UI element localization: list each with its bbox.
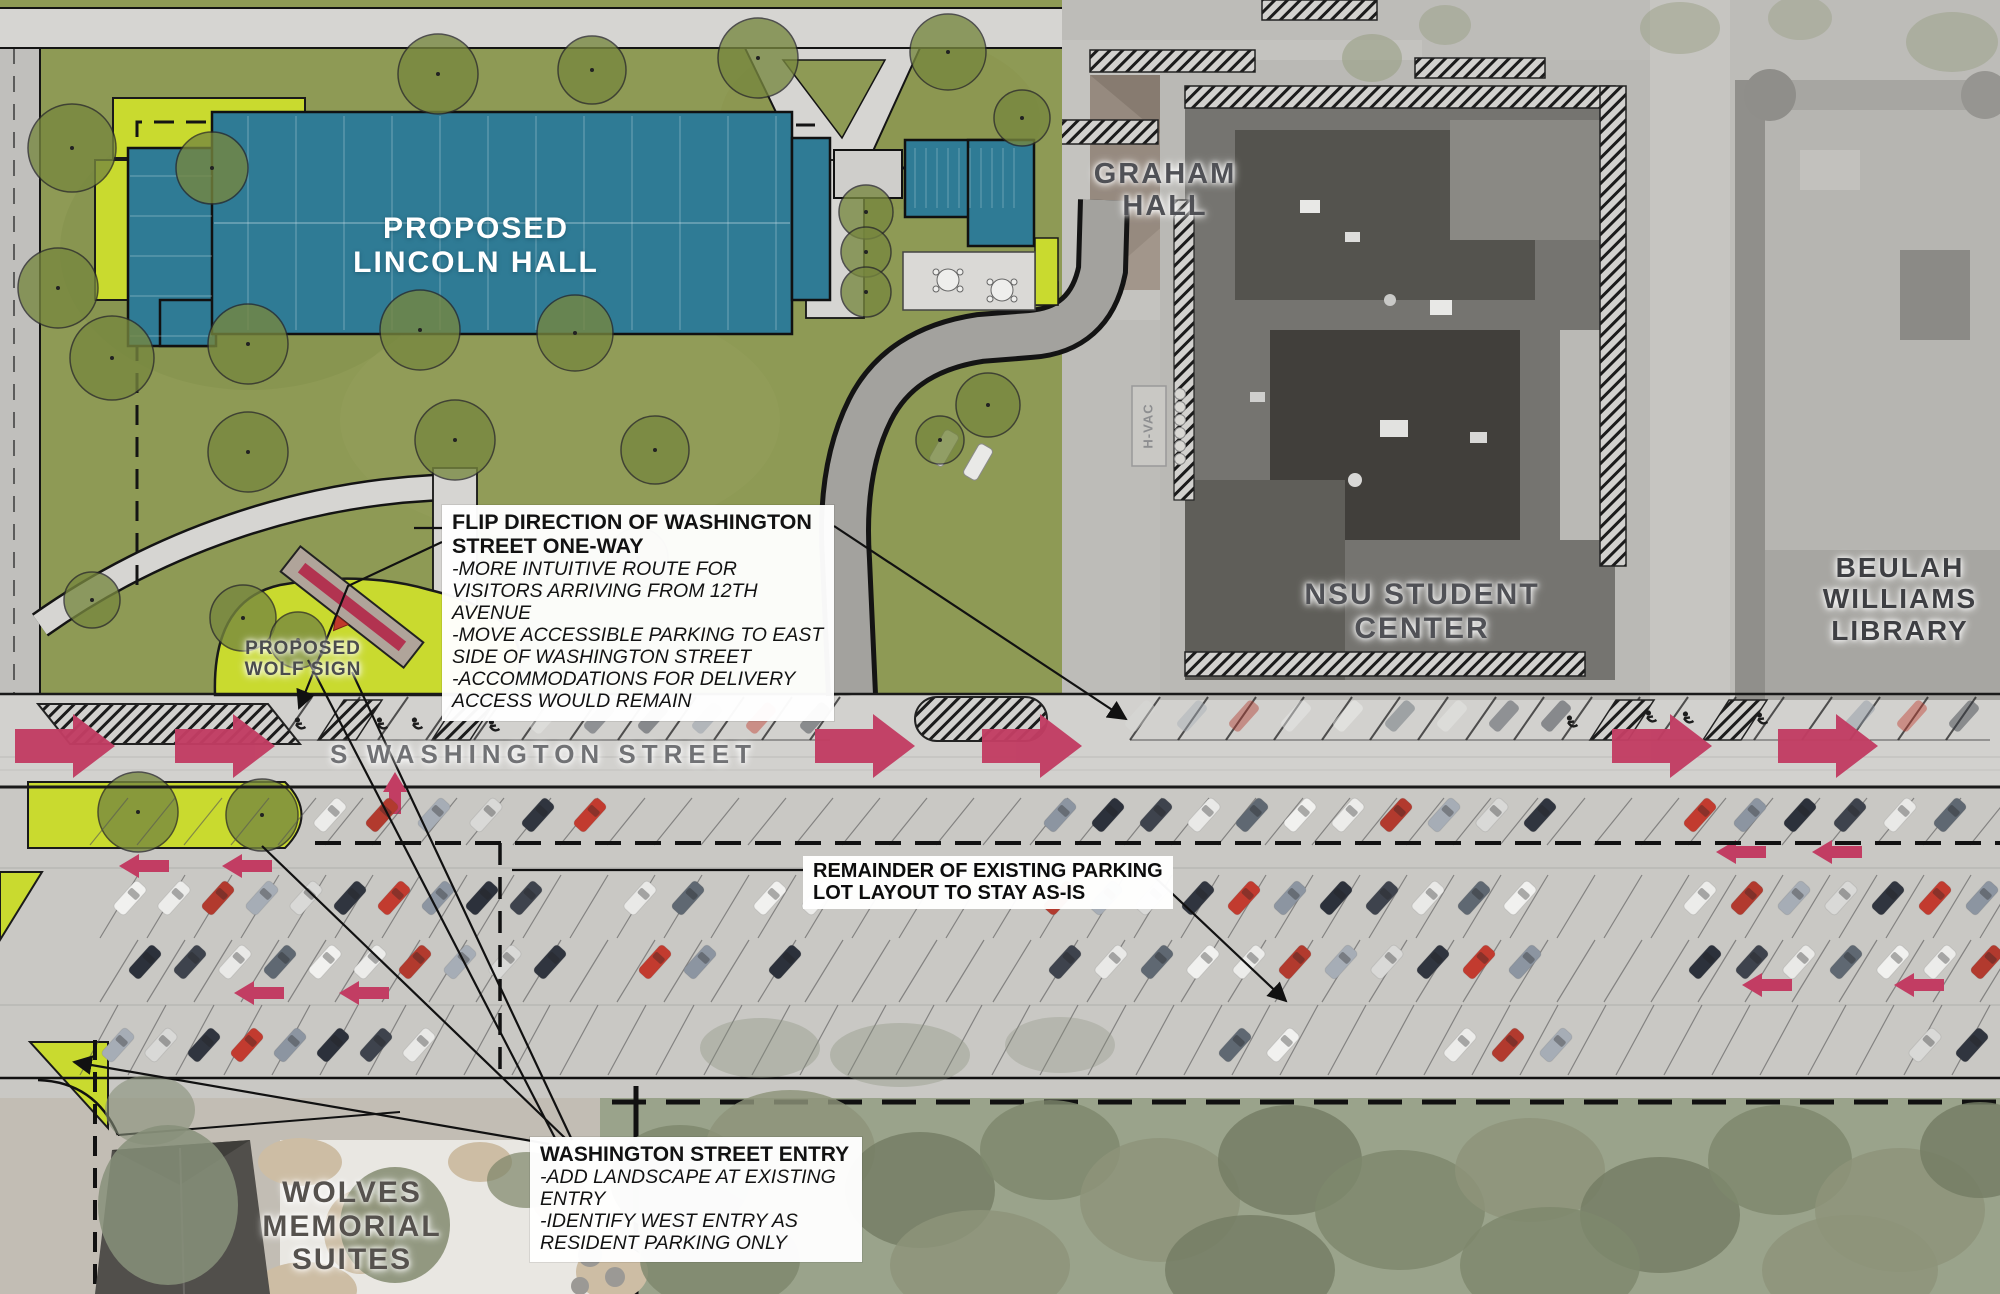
lincoln-hall-label-line1: PROPOSED: [353, 212, 599, 246]
parking-note: REMAINDER OF EXISTING PARKING LOT LAYOUT…: [803, 856, 1173, 909]
wolves-label-line2: MEMORIAL: [262, 1210, 441, 1244]
street-entry-callout: WASHINGTON STREET ENTRY -ADD LANDSCAPE A…: [530, 1137, 862, 1262]
graham-hall-label-line1: GRAHAM: [1094, 158, 1237, 190]
wolf-sign-label-line2: WOLF SIGN: [245, 659, 362, 680]
graham-hall-label: GRAHAM HALL: [1094, 158, 1237, 223]
lincoln-hall-label-line2: LINCOLN HALL: [353, 246, 599, 280]
parking-note-line2: LOT LAYOUT TO STAY AS-IS: [813, 882, 1163, 904]
wolves-label-line1: WOLVES: [262, 1176, 441, 1210]
library-label-line3: LIBRARY: [1823, 615, 1977, 646]
library-label-line1: BEULAH: [1823, 552, 1977, 583]
library-label-line2: WILLIAMS: [1823, 583, 1977, 614]
flip-direction-bullet-1: -MORE INTUITIVE ROUTE FOR VISITORS ARRIV…: [452, 558, 824, 624]
lincoln-hall-label: PROPOSED LINCOLN HALL: [353, 212, 599, 279]
nsu-student-center-label: NSU STUDENT CENTER: [1304, 578, 1539, 645]
graham-hall-label-line2: HALL: [1094, 190, 1237, 222]
flip-direction-callout: FLIP DIRECTION OF WASHINGTON STREET ONE-…: [442, 505, 834, 721]
site-plan-canvas: PROPOSED LINCOLN HALL GRAHAM HALL NSU ST…: [0, 0, 2000, 1294]
nsu-label-line1: NSU STUDENT: [1304, 578, 1539, 612]
flip-direction-bullet-3: -ACCOMMODATIONS FOR DELIVERY ACCESS WOUL…: [452, 668, 824, 712]
wolf-sign-label: PROPOSED WOLF SIGN: [245, 638, 362, 681]
wolves-label-line3: SUITES: [262, 1243, 441, 1277]
street-entry-bullet-1: -ADD LANDSCAPE AT EXISTING ENTRY: [540, 1166, 852, 1210]
nsu-label-line2: CENTER: [1304, 612, 1539, 646]
street-entry-title: WASHINGTON STREET ENTRY: [540, 1143, 852, 1166]
wolf-sign-label-line1: PROPOSED: [245, 638, 362, 659]
street-entry-bullet-2: -IDENTIFY WEST ENTRY AS RESIDENT PARKING…: [540, 1210, 852, 1254]
wolves-memorial-label: WOLVES MEMORIAL SUITES: [262, 1176, 441, 1277]
parking-note-line1: REMAINDER OF EXISTING PARKING: [813, 860, 1163, 882]
street-name-label: S WASHINGTON STREET: [330, 740, 757, 769]
flip-direction-title: FLIP DIRECTION OF WASHINGTON STREET ONE-…: [452, 511, 824, 558]
flip-direction-bullet-2: -MOVE ACCESSIBLE PARKING TO EAST SIDE OF…: [452, 624, 824, 668]
library-label: BEULAH WILLIAMS LIBRARY: [1823, 552, 1977, 646]
hvac-label: H-VAC: [1142, 403, 1157, 448]
